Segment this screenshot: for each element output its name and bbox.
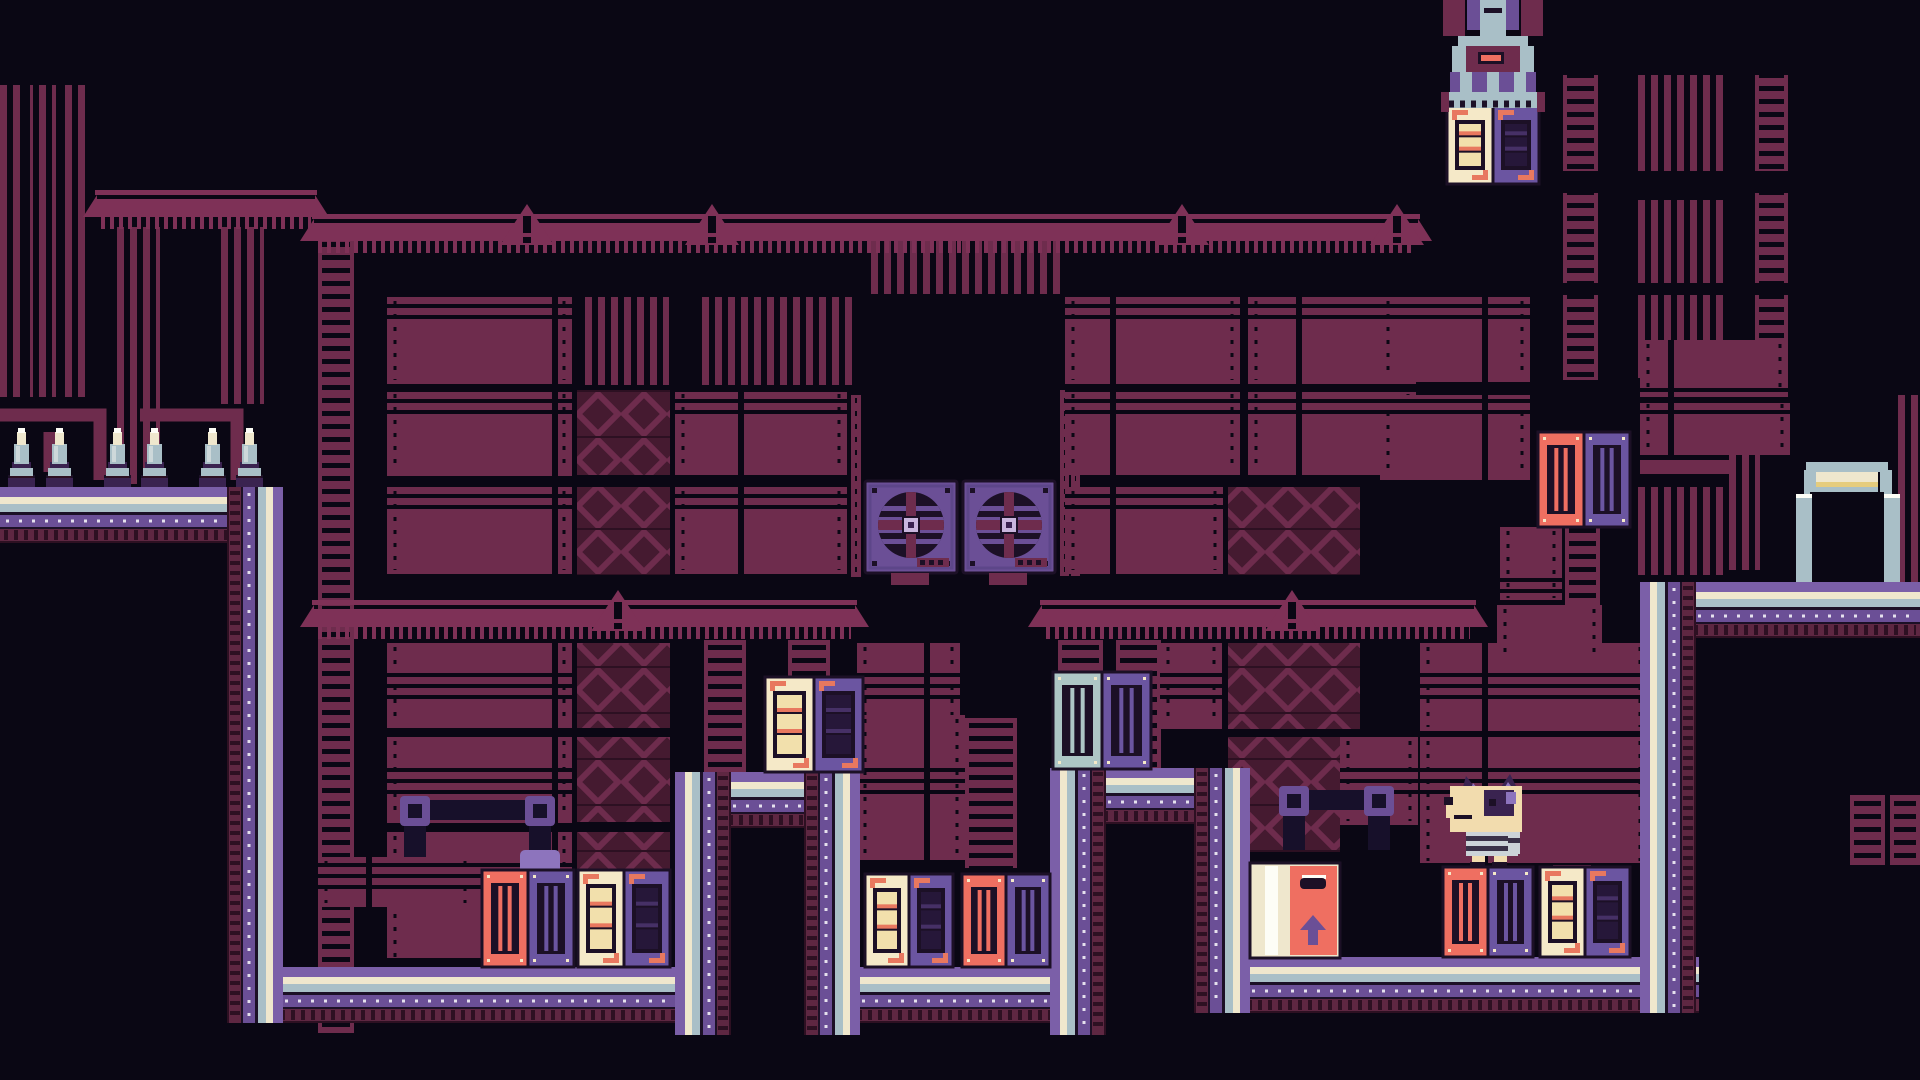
fan-icon [865,481,957,585]
wall-panel-plank [1065,297,1240,384]
exit-door [1796,462,1900,582]
game-viewport[interactable] [0,0,1920,1080]
crate-panel [1447,106,1539,184]
crate-panel [1540,867,1630,957]
wall-panel-corrug [60,85,86,397]
wall-panel-plank [1640,400,1790,455]
wall-panel-ladder [1563,193,1598,283]
wall-panel-plank [1497,605,1602,663]
fan-icon [963,481,1055,585]
wall-panel-plank [387,643,572,728]
wall-panel-ladder [1563,75,1598,171]
wall-panel-xpanel [577,390,670,475]
wall-panel-plank [387,390,572,476]
level-scene [0,0,1920,1080]
wall-panel-corrug [30,85,56,397]
wall-panel-corrug [0,85,26,397]
wall-panel-plank [675,390,847,475]
wall-panel-ladder [965,718,1017,868]
walkway-segment [1640,582,1696,1013]
wall-panel-plank [1380,297,1530,382]
walkway-segment [1194,957,1699,1013]
wall-panel-plank [1500,527,1562,602]
crate-panel [765,677,863,772]
wall-panel-corrug [1898,395,1920,587]
crate-panel [865,874,953,967]
wall-panel-plank [1640,340,1788,397]
wall-panel-plank [387,487,572,574]
wall-panel-ladder [1850,795,1885,865]
wall-panel-corrug [1635,200,1723,283]
wall-panel-ladder [851,395,861,577]
background [0,0,1920,1080]
wall-panel-xpanel [577,737,670,822]
wall-panel-ladder [1563,295,1598,380]
crate-vent [962,874,1050,967]
wall-panel-xpanel [577,487,670,575]
wall-panel-corrug [579,297,669,385]
wall-panel-ladder [1755,75,1788,171]
crate-arrow [1250,863,1340,958]
wall-panel-xpanel [1228,487,1360,575]
wall-panel-plank [1065,390,1240,475]
wall-panel-plank [1380,395,1530,480]
wall-panel-plank [1160,643,1222,729]
ceiling-machine [1441,0,1545,112]
wall-panel-plank [1065,487,1223,574]
wall-panel-plank [675,487,847,574]
walkway-segment [1194,768,1250,1013]
wall-panel-corrug [700,297,857,385]
walkway-segment [804,772,860,1035]
walkway-segment [227,967,687,1023]
wall-panel-ladder [704,640,746,772]
wall-panel-corrug [1635,75,1723,171]
crate-panel [578,870,670,967]
wall-panel-xpanel [577,643,670,728]
wall-panel-plank [318,857,473,907]
walkway-segment [227,487,283,1023]
wall-panel-corrug [1633,487,1725,575]
wall-panel-ladder [1755,193,1788,283]
wall-panel-ladder [1890,795,1920,865]
wall-panel-plank [857,715,965,860]
crate-vent [482,870,574,967]
crate-vent [1538,432,1630,527]
crate-vent [1443,867,1533,957]
walkway-segment [1050,768,1106,1035]
wall-panel-plank [387,297,572,384]
crate-vent [1053,672,1151,769]
wall-panel-corrug [218,227,264,404]
wall-panel-xpanel [1228,643,1360,729]
walkway-segment [675,772,731,1035]
